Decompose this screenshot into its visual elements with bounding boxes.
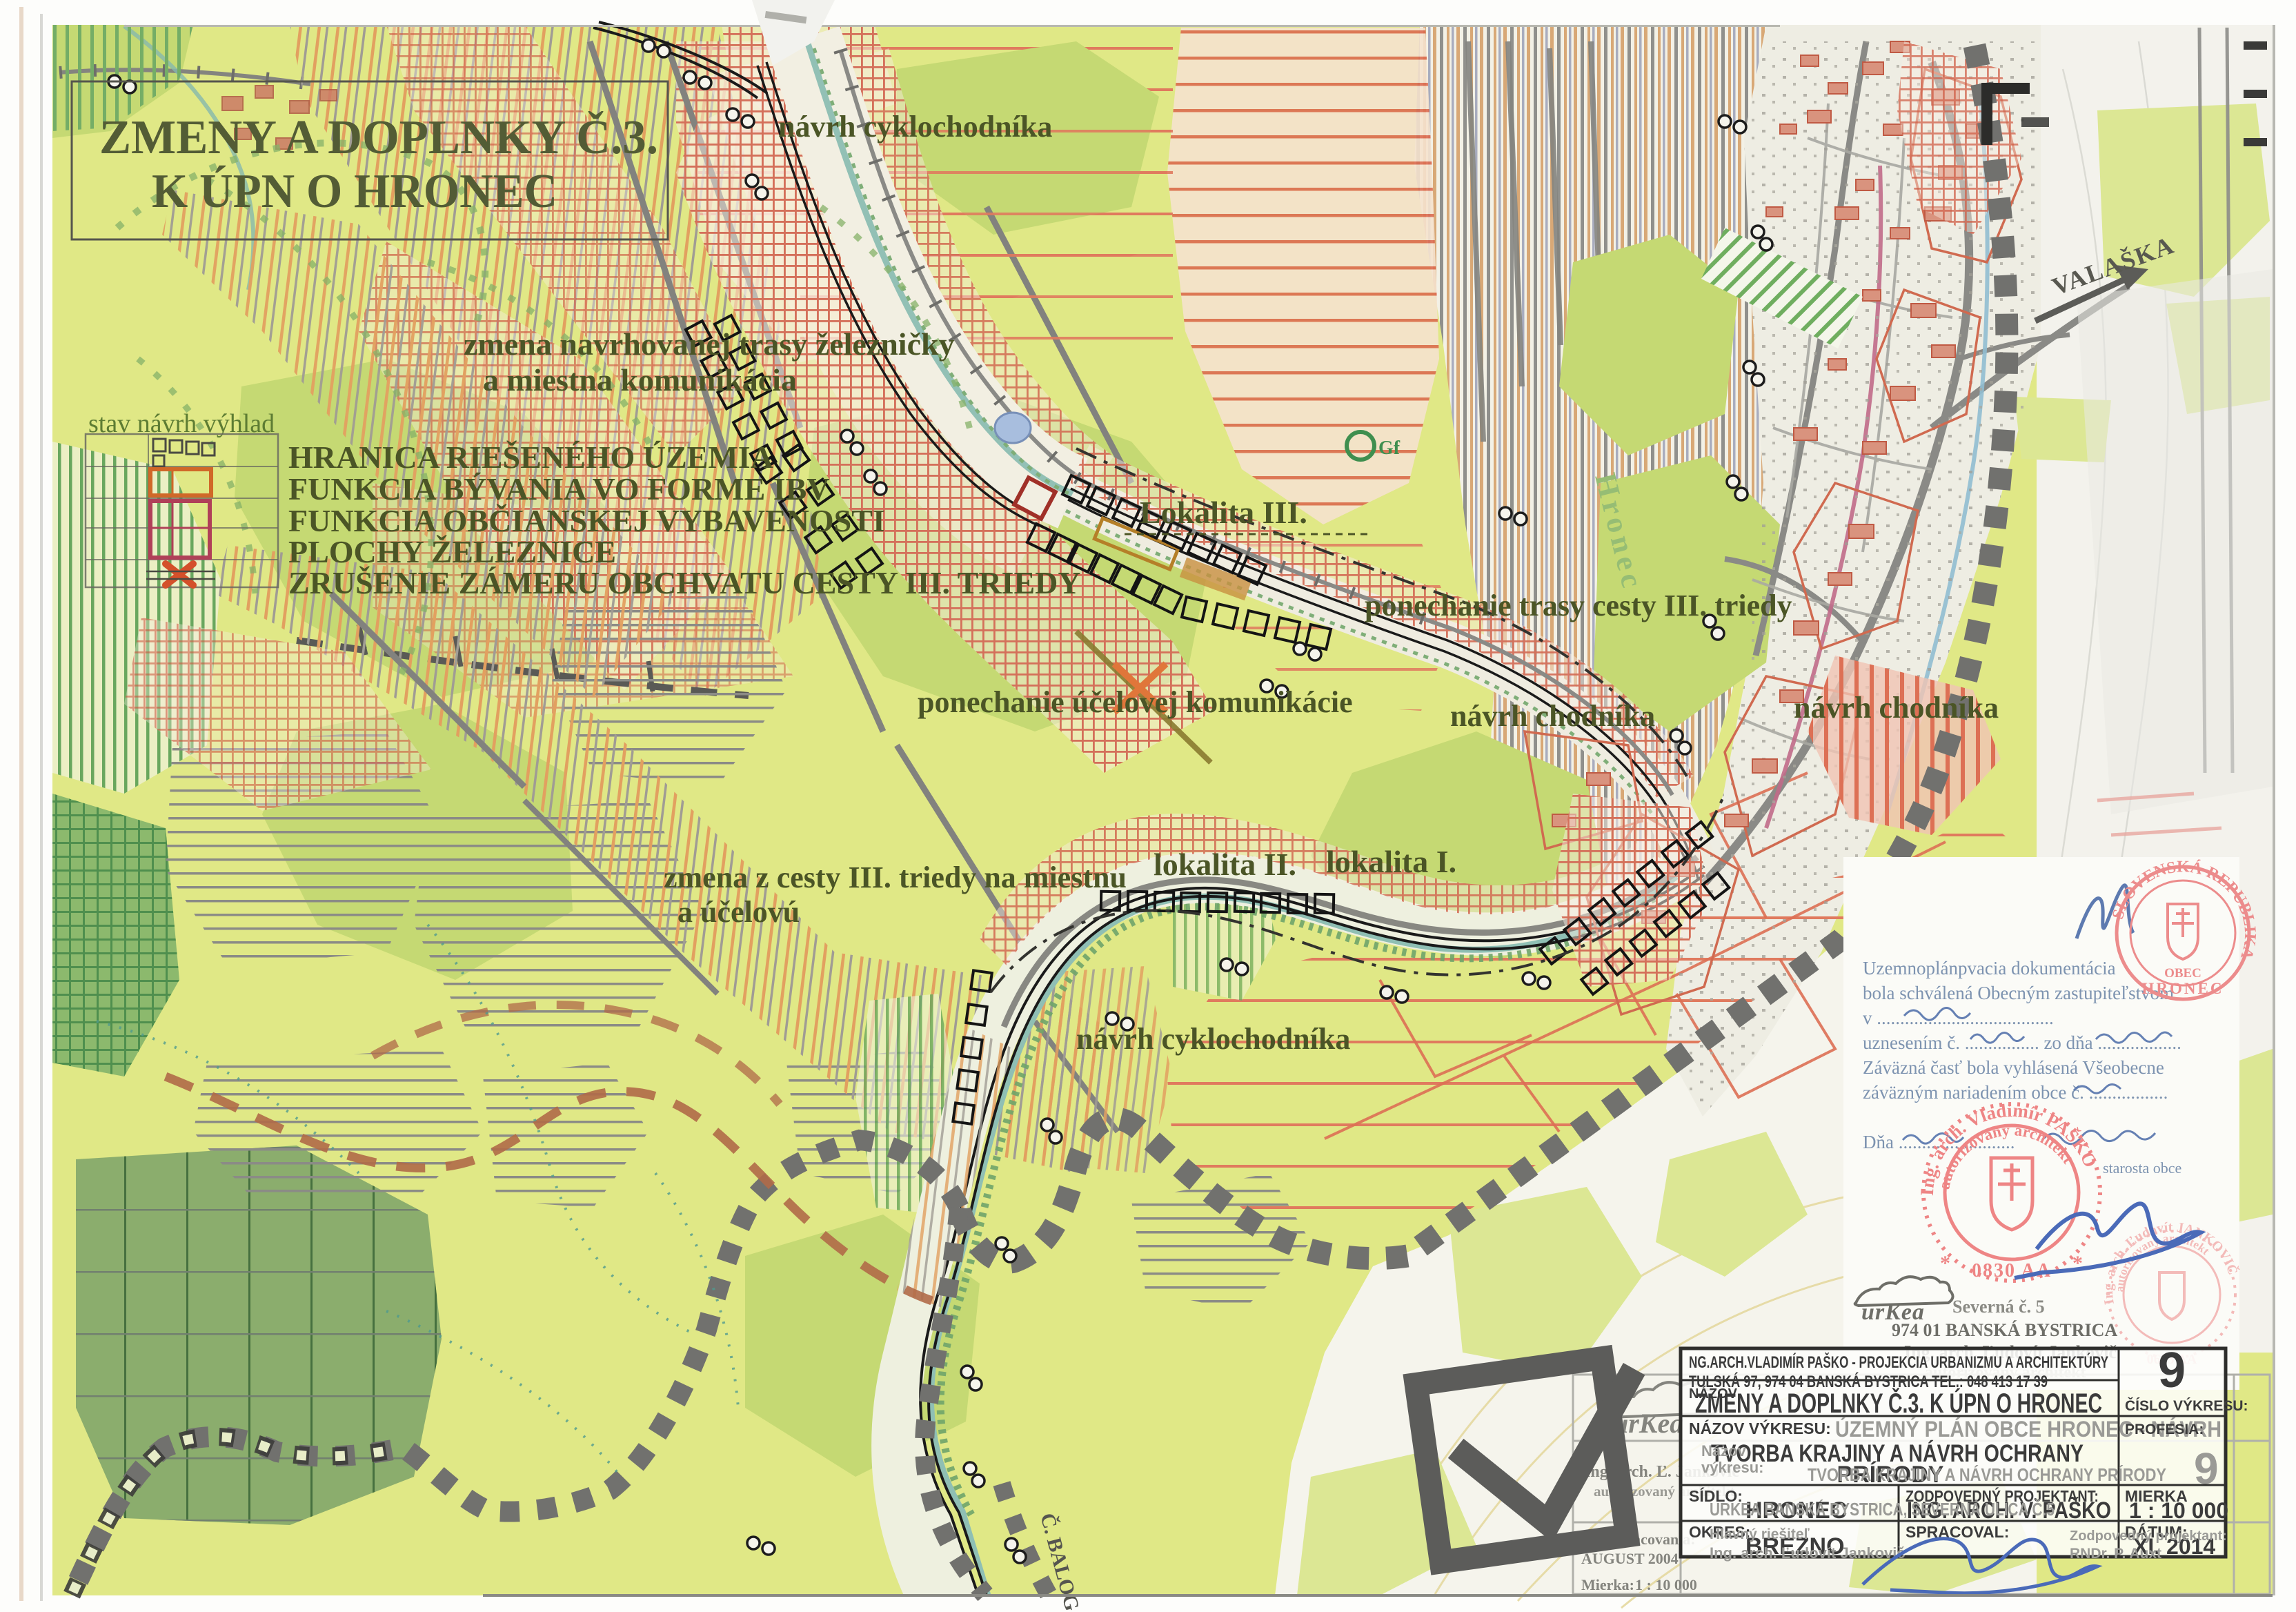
svg-text:HRANICA RIEŠENÉHO ÚZEMIA: HRANICA RIEŠENÉHO ÚZEMIA (288, 440, 773, 475)
svg-text:lokalita I.: lokalita I. (1326, 844, 1456, 879)
svg-text:PROFESIA:: PROFESIA: (2125, 1422, 2204, 1437)
svg-text:uznesením č. ................: uznesením č. ................ zo dňa ...… (1863, 1032, 2181, 1053)
svg-text:a účelovú: a účelovú (677, 895, 800, 929)
svg-text:0830 AA: 0830 AA (1972, 1260, 2052, 1281)
svg-text:FUNKCIA BÝVANIA VO FORME IBV: FUNKCIA BÝVANIA VO FORME IBV (288, 471, 830, 507)
svg-text:NG.ARCH.VLADIMÍR PAŠKO - PROJE: NG.ARCH.VLADIMÍR PAŠKO - PROJEKCIA URBAN… (1689, 1353, 2108, 1372)
svg-text:9: 9 (2158, 1343, 2186, 1398)
svg-text:1 : 10 000: 1 : 10 000 (1635, 1576, 1697, 1593)
svg-text:lokalita II.: lokalita II. (1154, 847, 1296, 882)
svg-text:*: * (1940, 1252, 1950, 1275)
svg-text:K ÚPN O HRONEC: K ÚPN O HRONEC (152, 165, 557, 218)
svg-text:URKEA BANSKÁ BYSTRICA, SEVERNÁ: URKEA BANSKÁ BYSTRICA, SEVERNÁ ULICA Č.5 (1710, 1499, 2055, 1520)
svg-text:ZRUŠENIE ZÁMERU OBCHVATU CESTY: ZRUŠENIE ZÁMERU OBCHVATU CESTY III. TRIE… (288, 565, 1081, 600)
svg-text:SPRACOVAL:: SPRACOVAL: (1906, 1523, 2009, 1541)
svg-text:ponechanie účelovej komunikáci: ponechanie účelovej komunikácie (918, 685, 1353, 719)
svg-text:návrh chodníka: návrh chodníka (1794, 691, 1999, 725)
svg-text:Gf: Gf (1378, 438, 1401, 459)
svg-text:návrh cyklochodníka: návrh cyklochodníka (778, 110, 1052, 144)
svg-text:záväzným nariadením obce č.: záväzným nariadením obce č. ............… (1863, 1082, 2168, 1103)
svg-text:a miestna komunikácia: a miestna komunikácia (483, 362, 797, 397)
svg-text:FUNKCIA OBČIANSKEJ VYBAVENOSTI: FUNKCIA OBČIANSKEJ VYBAVENOSTI (288, 503, 885, 538)
svg-text:ZMENY A DOPLNKY Č.3. K ÚPN O H: ZMENY A DOPLNKY Č.3. K ÚPN O HRONEC (1695, 1387, 2102, 1419)
svg-text:OBEC: OBEC (2164, 966, 2201, 981)
svg-text:Mierka:: Mierka: (1581, 1576, 1634, 1593)
svg-text:1 : 10 000: 1 : 10 000 (2129, 1498, 2228, 1523)
svg-text:Ing. arch. Ľudovít Jankovič: Ing. arch. Ľudovít Jankovič (1710, 1544, 1906, 1562)
svg-text:ponechanie trasy cesty III. tr: ponechanie trasy cesty III. triedy (1365, 589, 1792, 622)
svg-text:PLOCHY ŽELEZNICE: PLOCHY ŽELEZNICE (288, 534, 616, 569)
svg-text:výkresu:: výkresu: (1701, 1459, 1764, 1476)
svg-text:Uzemnoplánpvacia dokumentácia: Uzemnoplánpvacia dokumentácia (1863, 958, 2116, 979)
svg-text:RNDr. P. Auxt: RNDr. P. Auxt (2070, 1546, 2161, 1562)
svg-text:zmena navrhovanej trasy železn: zmena navrhovanej trasy železničky (464, 326, 955, 362)
svg-text:zmena z cesty III. triedy na m: zmena z cesty III. triedy na miestnu (664, 861, 1127, 894)
svg-text:Hlavný riešiteľ: Hlavný riešiteľ (1710, 1526, 1810, 1542)
svg-text:ZMENY A DOPLNKY Č.3.: ZMENY A DOPLNKY Č.3. (99, 111, 658, 164)
svg-text:TVORBA KRAJINY A NÁVRH OCHRANY: TVORBA KRAJINY A NÁVRH OCHRANY PRÍRODY (1808, 1464, 2166, 1485)
svg-text:974 01 BANSKÁ BYSTRICA: 974 01 BANSKÁ BYSTRICA (1892, 1320, 2117, 1340)
svg-text:návrh cyklochodníka: návrh cyklochodníka (1076, 1022, 1350, 1056)
svg-text:bola schválená Obecným zast: bola schválená Obecným zastupiteľstvom (1863, 983, 2174, 1003)
svg-text:Názov: Názov (1701, 1442, 1747, 1459)
svg-text:9: 9 (2194, 1444, 2219, 1493)
svg-text:starosta obce: starosta obce (2103, 1159, 2181, 1177)
svg-text:Lokalita III.: Lokalita III. (1140, 495, 1307, 530)
svg-text:Zodpovedný projektant:: Zodpovedný projektant: (2070, 1529, 2227, 1544)
svg-text:NÁZOV VÝKRESU:: NÁZOV VÝKRESU: (1689, 1419, 1831, 1437)
svg-text:návrh chodníka: návrh chodníka (1450, 699, 1655, 733)
svg-text:Severná č. 5: Severná č. 5 (1952, 1297, 2045, 1317)
svg-text:ČÍSLO VÝKRESU:: ČÍSLO VÝKRESU: (2125, 1397, 2248, 1414)
svg-text:AUGUST 2004: AUGUST 2004 (1581, 1550, 1679, 1567)
svg-text:HRONEC: HRONEC (2142, 980, 2224, 997)
svg-text:Záväzná časť bola vyhlásená: Záväzná časť bola vyhlásená Všeobecne (1863, 1057, 2164, 1078)
